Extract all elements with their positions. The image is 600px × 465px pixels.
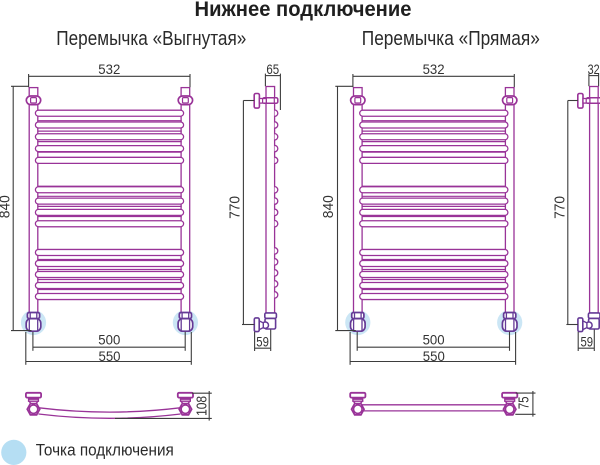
svg-text:532: 532: [423, 62, 445, 78]
svg-text:550: 550: [423, 349, 445, 365]
svg-text:65: 65: [266, 62, 279, 78]
svg-text:840: 840: [320, 195, 337, 218]
svg-text:59: 59: [581, 334, 594, 350]
svg-text:550: 550: [99, 349, 121, 365]
svg-text:770: 770: [551, 196, 568, 219]
svg-text:500: 500: [423, 333, 445, 349]
svg-text:Перемычка «Выгнутая»: Перемычка «Выгнутая»: [56, 28, 246, 50]
svg-text:Перемычка «Прямая»: Перемычка «Прямая»: [362, 28, 540, 50]
svg-text:59: 59: [256, 334, 269, 350]
svg-text:500: 500: [98, 333, 120, 349]
svg-text:32: 32: [588, 62, 600, 78]
svg-text:Точка подключения: Точка подключения: [36, 440, 174, 459]
svg-text:770: 770: [226, 196, 243, 219]
svg-text:532: 532: [98, 62, 120, 78]
svg-text:75: 75: [515, 396, 532, 409]
svg-text:840: 840: [0, 195, 13, 218]
svg-text:Нижнее подключение: Нижнее подключение: [195, 0, 412, 21]
svg-text:108: 108: [193, 396, 210, 416]
